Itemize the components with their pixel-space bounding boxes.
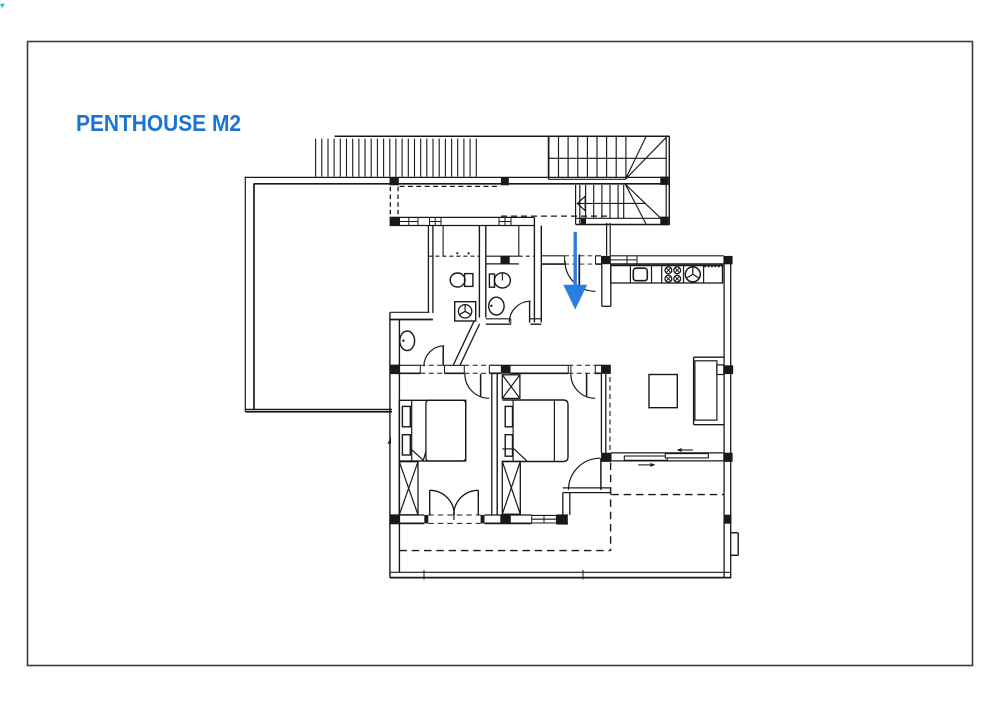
svg-text:PENTHOUSE M2: PENTHOUSE M2 — [76, 110, 241, 136]
